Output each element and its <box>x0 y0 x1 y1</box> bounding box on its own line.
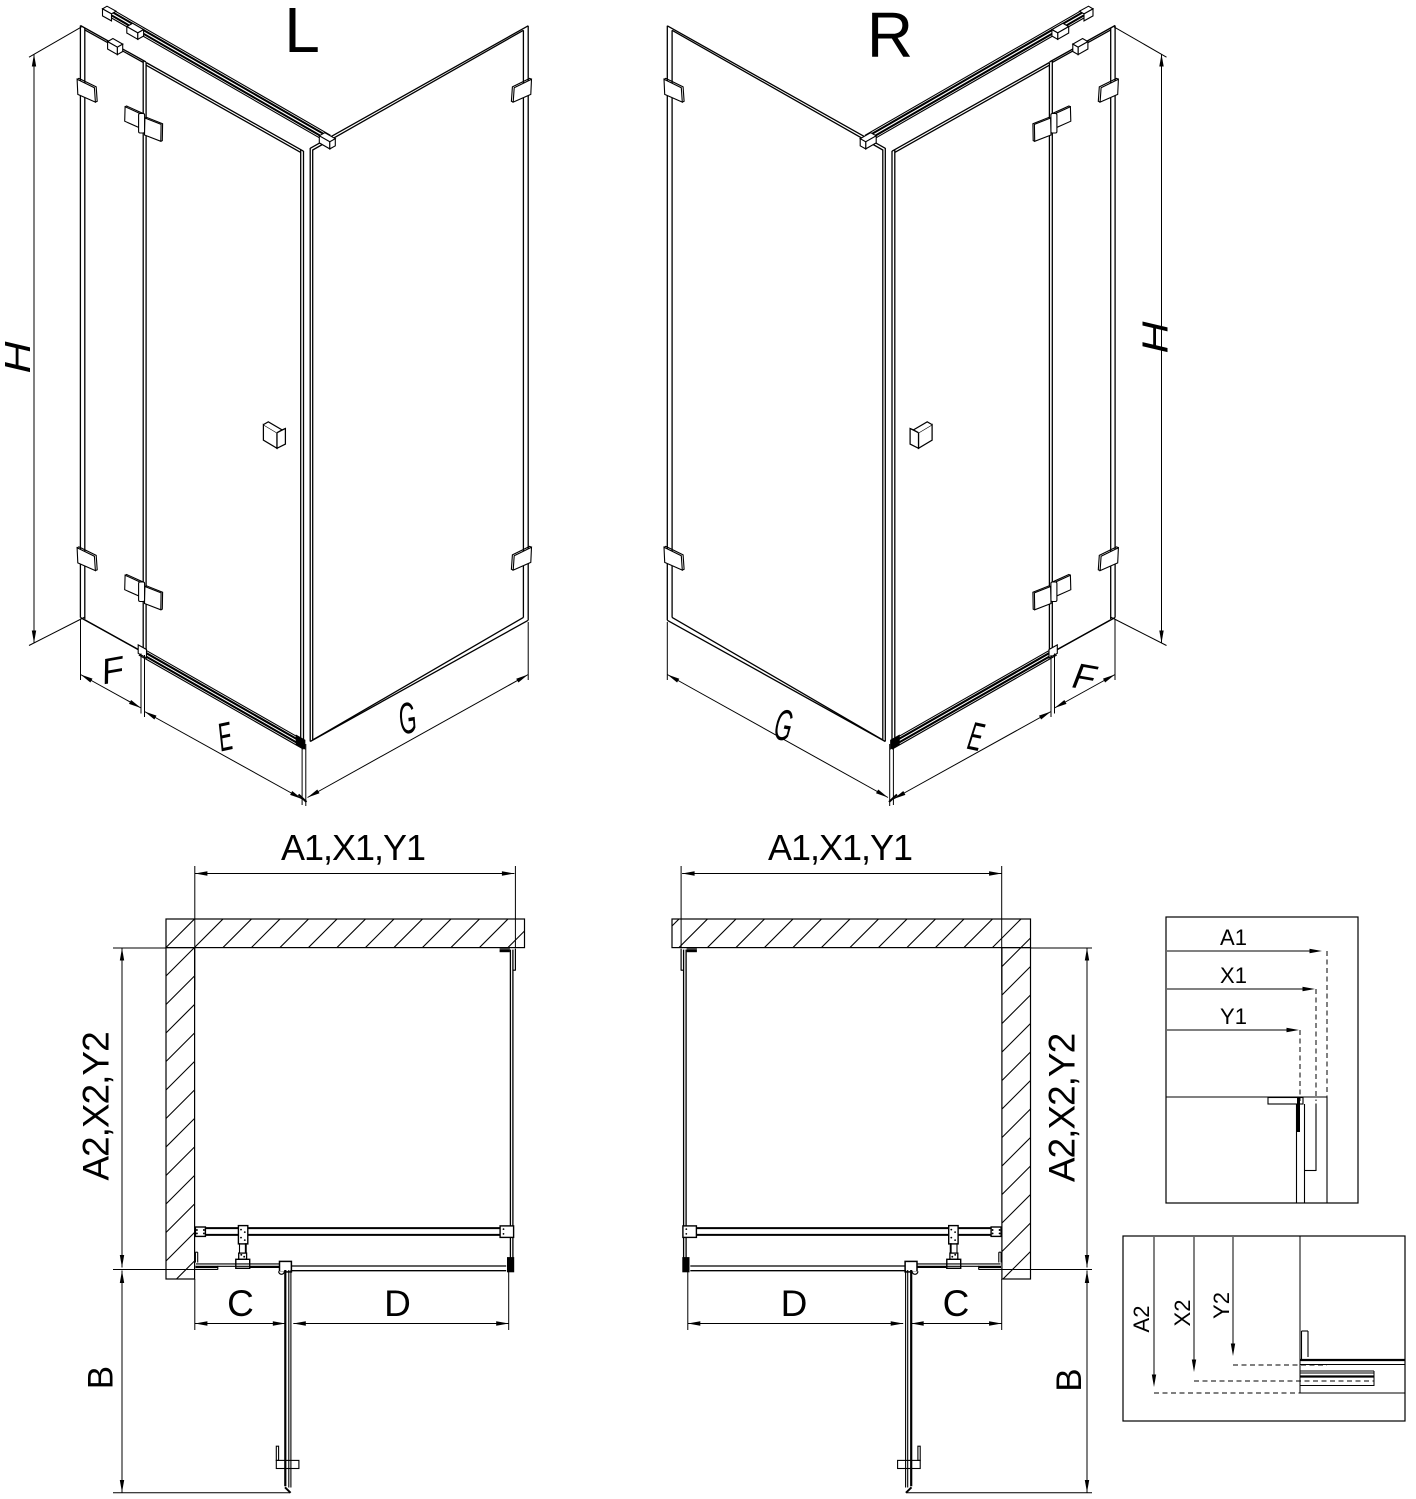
svg-text:C: C <box>943 1283 970 1324</box>
svg-text:B: B <box>1050 1368 1089 1391</box>
svg-text:B: B <box>82 1366 121 1389</box>
svg-text:C: C <box>227 1283 254 1324</box>
svg-text:X2: X2 <box>1170 1300 1195 1327</box>
svg-text:A1,X1,Y1: A1,X1,Y1 <box>768 827 912 868</box>
svg-text:Y1: Y1 <box>1220 1004 1247 1029</box>
svg-text:D: D <box>384 1283 411 1324</box>
svg-text:A1: A1 <box>1220 925 1247 950</box>
svg-text:H: H <box>0 340 38 373</box>
svg-text:A1,X1,Y1: A1,X1,Y1 <box>281 827 425 868</box>
svg-text:L: L <box>284 0 320 66</box>
svg-text:D: D <box>781 1283 808 1324</box>
svg-text:R: R <box>867 0 913 71</box>
svg-text:A2,X2,Y2: A2,X2,Y2 <box>76 1032 117 1180</box>
svg-text:Y2: Y2 <box>1209 1292 1234 1319</box>
svg-text:A2,X2,Y2: A2,X2,Y2 <box>1042 1034 1083 1182</box>
svg-text:A2: A2 <box>1129 1306 1154 1333</box>
svg-text:H: H <box>1135 320 1176 353</box>
svg-text:X1: X1 <box>1220 963 1247 988</box>
